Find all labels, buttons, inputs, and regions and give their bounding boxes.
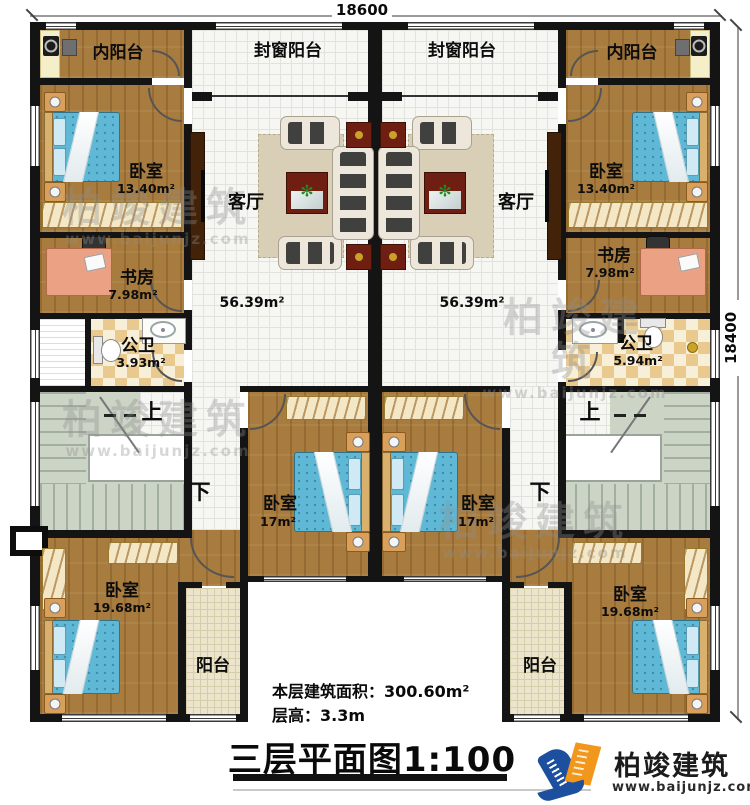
- window: [30, 330, 40, 378]
- window: [710, 330, 720, 378]
- tv: [201, 170, 205, 222]
- rail-chunk: [382, 92, 402, 101]
- washing-machine: [691, 36, 707, 56]
- room-label-living-right: 客厅: [498, 194, 534, 212]
- window: [30, 402, 40, 506]
- wall-midbed-bottom-right: [382, 576, 404, 582]
- stair-landing-left: [88, 434, 188, 482]
- nightstand: [686, 694, 708, 714]
- cabinet: [675, 39, 690, 56]
- dimension-tick: [730, 19, 743, 32]
- stair-arrow-tick: [614, 414, 626, 417]
- wall-midbed-bottom-right: [486, 576, 510, 582]
- coffee-table: [424, 172, 466, 214]
- drain: [687, 342, 698, 353]
- bed: [632, 620, 708, 694]
- dimension-tick: [730, 711, 743, 724]
- room-label-inner-balcony-right: 内阳台: [607, 45, 658, 62]
- room-area-bedroom-bottom-right: 19.68m²: [601, 606, 659, 619]
- window: [190, 714, 236, 722]
- wall-midbed-left-side: [240, 428, 248, 722]
- wall-bed-study-left: [40, 232, 184, 238]
- wall-balcony-right-rail: [510, 582, 524, 588]
- tv-cabinet: [547, 132, 562, 260]
- desk: [46, 248, 112, 296]
- wall-midbed-bottom-left: [240, 576, 264, 582]
- logo-url: www.baijunjz.com: [612, 780, 750, 795]
- rail-line-left: [212, 95, 348, 97]
- nightstand: [44, 92, 66, 112]
- washing-machine: [43, 36, 59, 56]
- room-label-bedroom-mid-left: 卧室: [263, 496, 297, 513]
- nightstand: [44, 598, 66, 618]
- coffee-table: [286, 172, 328, 214]
- stair-arrow-tick: [124, 414, 136, 417]
- wall-balcony-left-rail: [186, 582, 202, 588]
- tv: [545, 170, 549, 222]
- window: [710, 106, 720, 166]
- end-table: [380, 244, 406, 270]
- wall-midbed-bottom-left: [346, 576, 368, 582]
- room-label-bath-right: 公卫: [619, 336, 653, 353]
- cabinet: [62, 39, 77, 56]
- room-area-living-right: 56.39m²: [439, 296, 504, 310]
- room-area-bath-left: 3.93m²: [116, 357, 165, 370]
- window: [408, 22, 534, 30]
- bed: [632, 112, 708, 182]
- balcony-left-floor: [186, 588, 240, 714]
- room-area-bedroom-mid-left: 17m²: [260, 516, 296, 529]
- window: [46, 22, 76, 30]
- window: [216, 22, 342, 30]
- window: [62, 714, 166, 722]
- room-area-study-left: 7.98m²: [108, 289, 157, 302]
- wardrobe: [286, 396, 366, 420]
- room-label-study-right: 书房: [597, 248, 631, 265]
- nightstand: [686, 182, 708, 202]
- wardrobe: [384, 396, 464, 420]
- wall-bath-bottom-right: [558, 386, 720, 392]
- room-label-inner-balcony-left: 内阳台: [93, 45, 144, 62]
- wardrobe: [572, 542, 642, 564]
- window: [30, 106, 40, 166]
- stair-arrow-tick: [104, 414, 116, 417]
- window: [404, 576, 486, 582]
- wall-divider-left: [184, 22, 192, 88]
- wardrobe: [568, 202, 708, 228]
- room-area-bedroom-bottom-left: 19.68m²: [93, 602, 151, 615]
- stairs-up-left: 上: [142, 402, 163, 423]
- wall-living-midbed-right: [382, 386, 510, 392]
- wall-bedroom-br-top: [558, 530, 720, 538]
- room-area-bath-right: 5.94m²: [613, 355, 662, 368]
- stairs-down-right: 下: [530, 482, 551, 503]
- rail-line-right: [402, 95, 538, 97]
- wall-divider-right: [558, 382, 566, 530]
- room-label-balcony-left: 阳台: [196, 658, 230, 675]
- sofa: [278, 236, 342, 270]
- room-label-balcony-right: 阳台: [523, 658, 557, 675]
- room-area-bedroom-mid-right: 17m²: [458, 516, 494, 529]
- window: [514, 714, 560, 722]
- wall-midbed-right-side: [502, 428, 510, 722]
- room-area-bedroom-top-left: 13.40m²: [117, 183, 175, 196]
- corridor-left-floor: [192, 386, 240, 530]
- room-label-bath-left: 公卫: [121, 338, 155, 355]
- sofa: [280, 116, 340, 150]
- title-underline-thin: [233, 789, 591, 791]
- window: [710, 402, 720, 506]
- window: [674, 22, 704, 30]
- wall-stairs-bottom-left: [30, 530, 192, 538]
- stairs-up-right: 上: [580, 402, 601, 423]
- room-area-bedroom-top-right: 13.40m²: [577, 183, 635, 196]
- wall-center: [368, 22, 382, 582]
- wall-bath-bottom-left: [30, 386, 192, 392]
- floor-plan: 柏竣建筑 www.baijunjz.com 柏竣建筑 www.baijunjz.…: [0, 0, 750, 805]
- stair-arrow-tick: [634, 414, 646, 417]
- wardrobe: [108, 542, 178, 564]
- rail-chunk: [348, 92, 368, 101]
- sofa-sectional: [378, 146, 420, 240]
- window: [584, 714, 688, 722]
- bed: [44, 112, 120, 182]
- wall-inner-balcony-left: [40, 78, 152, 85]
- desk: [640, 248, 706, 296]
- logo-name: 柏竣建筑: [614, 744, 730, 783]
- sink: [579, 321, 607, 338]
- room-label-bedroom-bottom-right: 卧室: [613, 587, 647, 604]
- window: [710, 606, 720, 670]
- stairs-down-left: 下: [190, 482, 211, 503]
- wall-divider-right: [558, 22, 566, 88]
- end-table: [380, 122, 406, 148]
- floor-height-text: 层高：3.3m: [272, 702, 365, 726]
- room-label-sealed-balcony-left: 封窗阳台: [254, 43, 322, 60]
- room-label-bedroom-bottom-left: 卧室: [105, 583, 139, 600]
- room-label-bedroom-top-right: 卧室: [589, 164, 623, 181]
- sofa: [412, 116, 472, 150]
- bed: [44, 620, 120, 694]
- wall-balcony-left-rail: [226, 582, 240, 588]
- rail-chunk: [538, 92, 558, 101]
- room-area-living-left: 56.39m²: [219, 296, 284, 310]
- nightstand: [44, 182, 66, 202]
- wardrobe: [42, 202, 182, 228]
- light-shaft-left: [40, 318, 85, 386]
- room-label-bedroom-top-left: 卧室: [129, 164, 163, 181]
- wall-living-midbed-left: [240, 386, 368, 392]
- nightstand: [44, 694, 66, 714]
- end-table: [346, 244, 372, 270]
- wall-shaft-divider: [85, 318, 91, 386]
- window: [30, 606, 40, 670]
- bed: [294, 452, 370, 532]
- room-area-study-right: 7.98m²: [585, 267, 634, 280]
- wall-balcony-right-side: [564, 582, 572, 722]
- room-label-sealed-balcony-right: 封窗阳台: [428, 43, 496, 60]
- dimension-right-value: 18400: [722, 300, 740, 376]
- nightstand: [382, 532, 406, 552]
- sofa: [410, 236, 474, 270]
- stair-treads-left-row: [40, 484, 188, 530]
- nightstand: [346, 532, 370, 552]
- room-label-bedroom-mid-right: 卧室: [461, 496, 495, 513]
- sofa-sectional: [332, 146, 374, 240]
- stair-treads-right-row: [562, 484, 710, 530]
- wall-balcony-right-rail: [548, 582, 564, 588]
- corridor-right-floor: [510, 386, 558, 530]
- wall-bed-study-right: [566, 232, 710, 238]
- wall-inner-balcony-right: [598, 78, 710, 85]
- wall-balcony-left-side: [178, 582, 186, 722]
- stair-landing-right: [562, 434, 662, 482]
- title-underline: [233, 774, 507, 781]
- nightstand: [382, 432, 406, 452]
- room-label-study-left: 书房: [120, 270, 154, 287]
- room-label-living-left: 客厅: [228, 194, 264, 212]
- rail-chunk: [192, 92, 212, 101]
- wall-divider-right: [558, 310, 566, 350]
- balcony-right-floor: [510, 588, 564, 714]
- window: [264, 576, 346, 582]
- nightstand: [686, 92, 708, 112]
- nightstand: [686, 598, 708, 618]
- end-table: [346, 122, 372, 148]
- wall-divider-left: [184, 382, 192, 530]
- floor-area-text: 本层建筑面积：300.60m²: [272, 678, 469, 702]
- dimension-top-value: 18600: [332, 1, 392, 19]
- bed: [382, 452, 458, 532]
- nightstand: [346, 432, 370, 452]
